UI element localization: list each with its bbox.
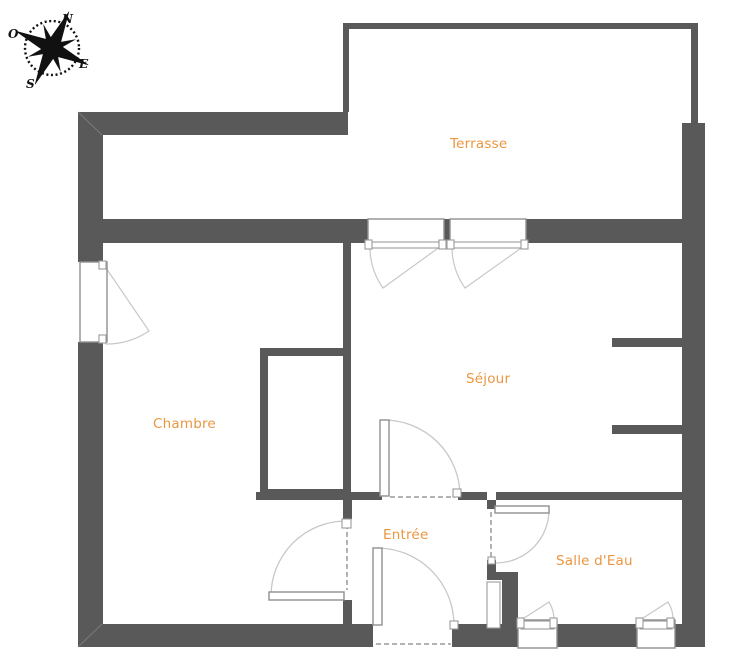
wall-left-lower bbox=[78, 342, 103, 647]
terrace-window-2 bbox=[450, 219, 526, 243]
compass-east-label: E bbox=[78, 57, 89, 71]
wall-bottom-right-a bbox=[557, 624, 637, 647]
wall-terrace-divider-right bbox=[526, 219, 682, 243]
chambre-window-hinge-top bbox=[99, 261, 106, 269]
room-label-salle-deau: Salle d'Eau bbox=[556, 553, 633, 569]
room-label-sejour: Séjour bbox=[466, 371, 510, 387]
terrace-window-1-hinge-right bbox=[439, 240, 446, 249]
sde-window-2-hinge-left bbox=[636, 618, 643, 628]
sde-door-arc bbox=[496, 510, 549, 563]
wall-chambre-entree-lower bbox=[343, 600, 352, 624]
wall-terrace-divider-mullion bbox=[444, 219, 450, 243]
compass-south-label: S bbox=[26, 77, 35, 91]
sde-window-1-hinge-right bbox=[550, 618, 557, 628]
wall-sejour-stub-upper bbox=[612, 338, 683, 347]
terrace-window-2-hinge-right bbox=[521, 240, 528, 249]
sde-window-2-swing bbox=[640, 602, 673, 620]
room-label-terrasse: Terrasse bbox=[450, 136, 507, 152]
sejour-door-leaf bbox=[380, 420, 389, 496]
sde-window-2-hinge-right bbox=[667, 618, 674, 628]
compass-rose-icon: N E S O bbox=[0, 0, 105, 101]
terrace-window-1 bbox=[368, 219, 444, 243]
front-door-leaf bbox=[373, 548, 382, 625]
wall-sde-column bbox=[502, 577, 518, 632]
wall-right bbox=[682, 123, 705, 647]
chambre-window-swing bbox=[106, 268, 149, 344]
wall-terrace-divider-left bbox=[103, 219, 368, 243]
sde-door-leaf bbox=[495, 506, 549, 513]
compass-west-label: O bbox=[8, 27, 19, 41]
terrace-parapet-left bbox=[343, 23, 349, 112]
sde-duct-inset bbox=[487, 582, 500, 628]
terrace-parapet-right bbox=[691, 23, 698, 123]
floor-plan-drawing: N E S O bbox=[0, 0, 750, 653]
front-door-arc bbox=[377, 548, 454, 625]
room-label-chambre: Chambre bbox=[153, 416, 216, 432]
chambre-window bbox=[80, 262, 107, 342]
chambre-door-hinge bbox=[342, 519, 351, 528]
terrace-window-1-hinge-left bbox=[365, 240, 372, 249]
compass-star bbox=[0, 0, 105, 101]
sde-window-1-hinge-left bbox=[517, 618, 524, 628]
wall-bottom-left bbox=[78, 624, 373, 647]
wall-salle-deau-top bbox=[496, 492, 682, 500]
floor-plan-canvas: N E S O bbox=[0, 0, 750, 653]
chambre-door-leaf bbox=[269, 592, 344, 600]
sde-door-stop bbox=[488, 557, 495, 564]
chambre-window-hinge-bottom bbox=[99, 335, 106, 343]
compass-north-label: N bbox=[61, 12, 74, 26]
sde-window-1-sill bbox=[521, 621, 554, 629]
terrace-window-1-swing bbox=[370, 246, 441, 288]
wall-top bbox=[78, 112, 348, 135]
wall-sejour-stub-lower bbox=[612, 425, 683, 434]
wall-chambre-entree-upper bbox=[343, 500, 352, 519]
wall-left-upper bbox=[78, 112, 103, 262]
terrace-parapet-top bbox=[343, 23, 697, 29]
closet-outline bbox=[264, 352, 347, 493]
front-door-stop bbox=[450, 621, 458, 629]
sejour-door-arc bbox=[384, 420, 460, 496]
terrace-window-2-sill bbox=[453, 242, 523, 248]
wall-room-divider-mid bbox=[351, 492, 382, 500]
terrace-window-2-hinge-left bbox=[447, 240, 454, 249]
chambre-door-arc bbox=[271, 521, 346, 596]
wall-room-divider-right bbox=[458, 492, 487, 500]
terrace-window-1-sill bbox=[371, 242, 441, 248]
sde-window-1-swing bbox=[521, 602, 554, 620]
room-label-entree: Entrée bbox=[383, 527, 428, 543]
sejour-door-stop bbox=[453, 489, 461, 497]
terrace-window-2-swing bbox=[452, 246, 524, 288]
